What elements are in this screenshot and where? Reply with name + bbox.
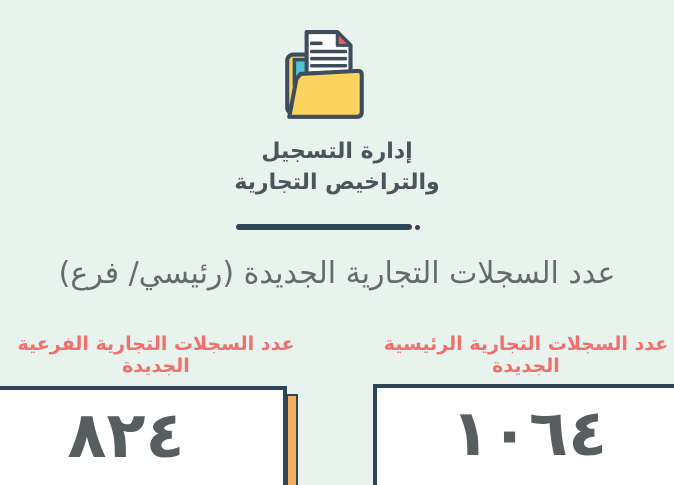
org-title: إدارة التسجيل والتراخيص التجارية: [0, 136, 674, 198]
org-title-line1: إدارة التسجيل: [0, 136, 674, 167]
stat-box-main-records: ١٠٦٤: [373, 384, 674, 485]
stat-value-branch-records: ٨٢٤: [67, 404, 184, 468]
folder-document-svg: [283, 28, 367, 126]
folder-front-flap: [289, 71, 361, 117]
folder-document-icon: [283, 28, 367, 126]
stat-label-main-records: عدد السجلات التجارية الرئيسية الجديدة: [378, 333, 674, 377]
stat-value-main-records: ١٠٦٤: [451, 402, 607, 466]
stat-label-branch-records: عدد السجلات التجارية الفرعية الجديدة: [0, 333, 312, 377]
infographic-canvas: إدارة التسجيل والتراخيص التجارية عدد الس…: [0, 0, 674, 485]
org-title-line2: والتراخيص التجارية: [0, 167, 674, 198]
stat-box-branch-records: ٨٢٤: [0, 386, 287, 485]
ribbon-accent: [286, 394, 298, 485]
divider-line: [236, 224, 412, 230]
page-title: عدد السجلات التجارية الجديدة (رئيسي/ فرع…: [0, 256, 674, 291]
document-fold-corner: [337, 32, 350, 45]
divider-dot: [415, 225, 420, 230]
